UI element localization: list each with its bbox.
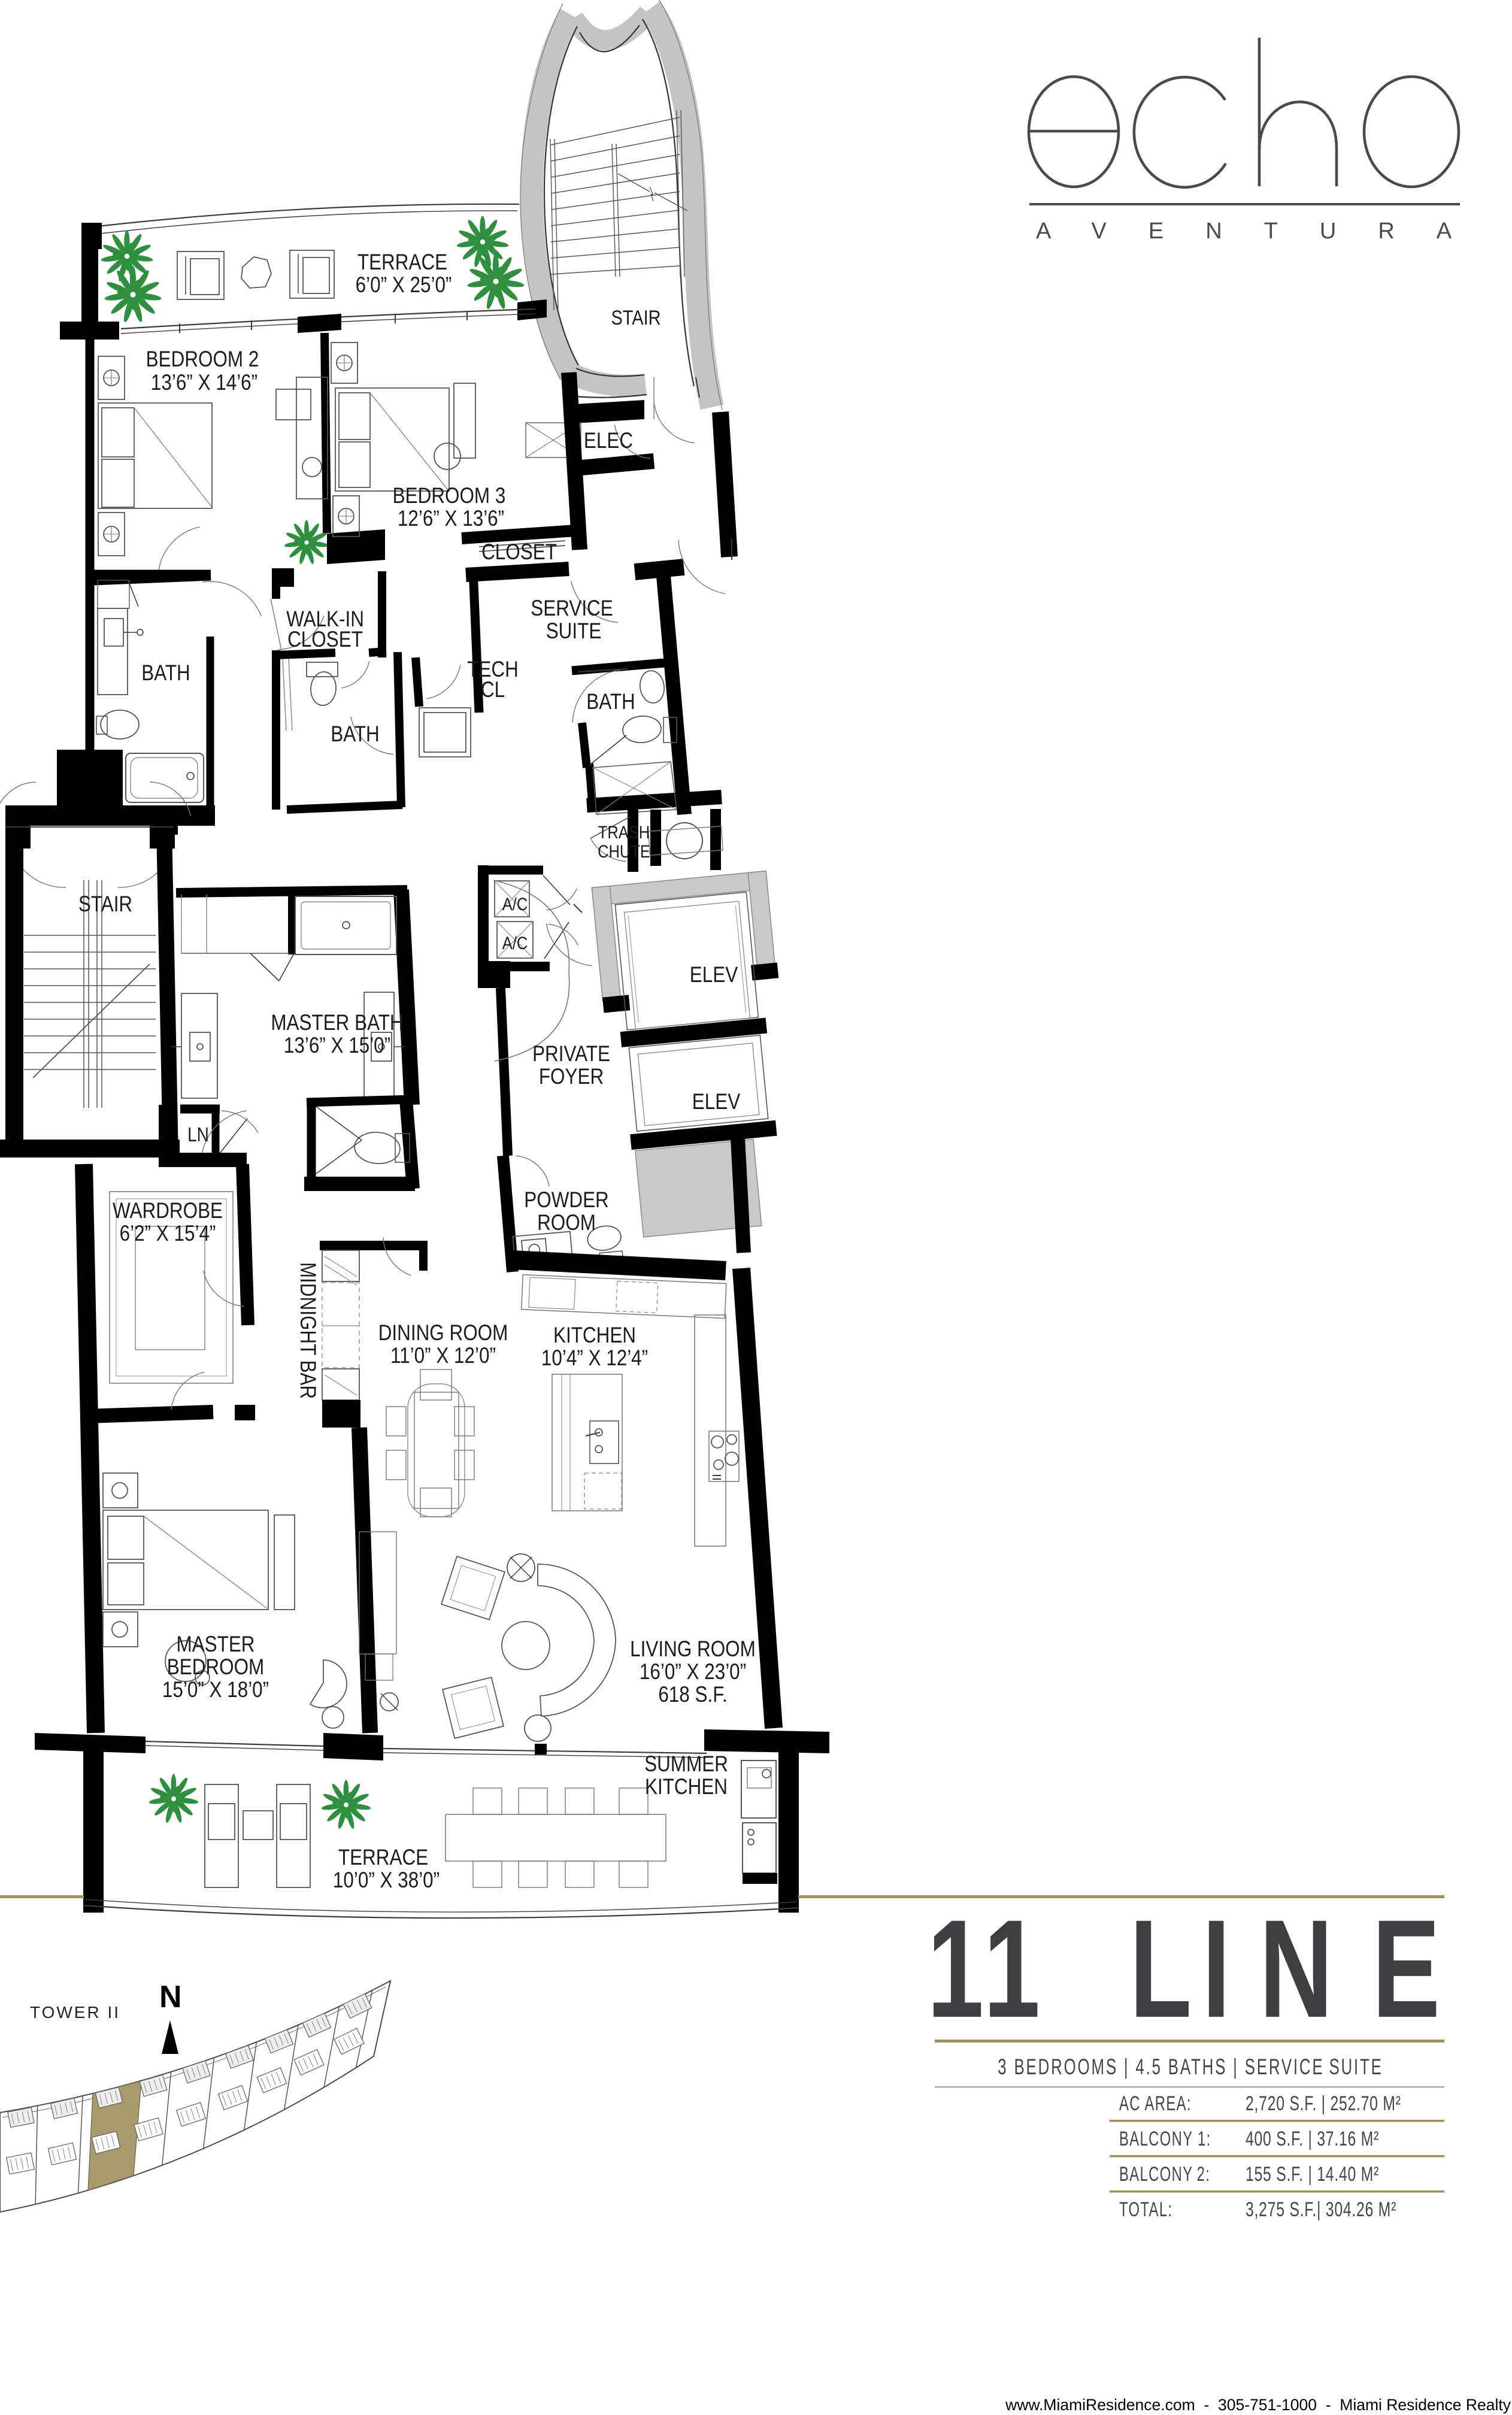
svg-text:POWDER: POWDER (524, 1188, 608, 1213)
svg-text:400 S.F. | 37.16 M²: 400 S.F. | 37.16 M² (1246, 2128, 1379, 2150)
svg-text:www.MiamiResidence.com - 305: www.MiamiResidence.com - 305-751-1000 - … (1005, 2396, 1511, 2414)
svg-text:AVENTURA: AVENTURA (1036, 219, 1493, 244)
svg-text:MASTER: MASTER (176, 1632, 254, 1657)
svg-text:TERRACE: TERRACE (338, 1846, 428, 1870)
svg-text:13’6” X 15’0”: 13’6” X 15’0” (284, 1034, 390, 1058)
svg-text:ELEV: ELEV (692, 1090, 740, 1114)
svg-text:SUMMER: SUMMER (644, 1752, 728, 1777)
svg-text:10’0” X 38’0”: 10’0” X 38’0” (333, 1868, 440, 1893)
svg-text:15’0” X 18’0”: 15’0” X 18’0” (162, 1678, 269, 1702)
svg-text:FOYER: FOYER (539, 1065, 604, 1089)
svg-text:3 BEDROOMS | 4.5 BATHS | SERVI: 3 BEDROOMS | 4.5 BATHS | SERVICE SUITE (998, 2054, 1383, 2079)
svg-text:WARDROBE: WARDROBE (113, 1199, 223, 1223)
svg-text:16’0” X 23’0”: 16’0” X 23’0” (640, 1660, 746, 1684)
svg-text:MIDNIGHT BAR: MIDNIGHT BAR (295, 1262, 320, 1399)
svg-text:BATH: BATH (586, 690, 635, 714)
svg-text:STAIR: STAIR (78, 892, 132, 917)
svg-text:CLOSET: CLOSET (287, 628, 363, 652)
svg-text:PRIVATE: PRIVATE (532, 1042, 610, 1066)
svg-text:CHUTE: CHUTE (598, 841, 650, 861)
svg-text:TERRACE: TERRACE (357, 250, 447, 275)
svg-text:KITCHEN: KITCHEN (553, 1323, 636, 1348)
svg-text:LIVING ROOM: LIVING ROOM (630, 1637, 756, 1662)
svg-text:BALCONY 1:: BALCONY 1: (1119, 2128, 1211, 2150)
svg-text:ROOM: ROOM (537, 1211, 596, 1235)
svg-text:618 S.F.: 618 S.F. (658, 1683, 727, 1707)
svg-text:KITCHEN: KITCHEN (645, 1775, 728, 1799)
svg-text:ELEV: ELEV (690, 963, 738, 987)
svg-text:3,275 S.F.| 304.26 M²: 3,275 S.F.| 304.26 M² (1246, 2198, 1396, 2221)
svg-text:13’6” X 14’6”: 13’6” X 14’6” (151, 371, 257, 395)
svg-text:6’0” X 25’0”: 6’0” X 25’0” (356, 273, 452, 298)
svg-text:SUITE: SUITE (546, 619, 602, 644)
svg-text:6’2” X 15’4”: 6’2” X 15’4” (120, 1222, 216, 1246)
svg-text:2,720 S.F. | 252.70 M²: 2,720 S.F. | 252.70 M² (1246, 2092, 1401, 2115)
svg-text:TRASH: TRASH (598, 822, 650, 842)
svg-text:BEDROOM 3: BEDROOM 3 (393, 484, 506, 508)
svg-text:BATH: BATH (331, 722, 380, 747)
svg-text:DINING ROOM: DINING ROOM (378, 1321, 508, 1346)
svg-text:11’0” X 12’0”: 11’0” X 12’0” (390, 1344, 496, 1368)
svg-text:MASTER BATH: MASTER BATH (271, 1011, 403, 1035)
svg-text:A/C: A/C (502, 894, 528, 914)
svg-text:LN: LN (187, 1124, 209, 1146)
svg-text:AC AREA:: AC AREA: (1119, 2092, 1192, 2115)
svg-text:155 S.F. | 14.40 M²: 155 S.F. | 14.40 M² (1246, 2163, 1379, 2186)
svg-text:SERVICE: SERVICE (531, 596, 613, 621)
svg-text:BATH: BATH (141, 661, 190, 686)
svg-text:BEDROOM: BEDROOM (167, 1655, 264, 1680)
svg-text:12’6” X 13’6”: 12’6” X 13’6” (398, 507, 504, 531)
svg-text:N: N (159, 1980, 182, 2014)
svg-text:ELEC: ELEC (584, 429, 633, 453)
svg-text:CL: CL (481, 678, 505, 702)
svg-text:A/C: A/C (502, 933, 528, 953)
svg-text:CLOSET: CLOSET (481, 540, 557, 565)
svg-text:BEDROOM 2: BEDROOM 2 (146, 347, 259, 372)
svg-text:10’4” X 12’4”: 10’4” X 12’4” (541, 1346, 648, 1371)
svg-text:TOWER II: TOWER II (30, 2003, 120, 2022)
svg-text:STAIR: STAIR (611, 306, 661, 329)
svg-text:BALCONY 2:: BALCONY 2: (1119, 2163, 1210, 2186)
svg-text:TOTAL:: TOTAL: (1119, 2198, 1172, 2221)
